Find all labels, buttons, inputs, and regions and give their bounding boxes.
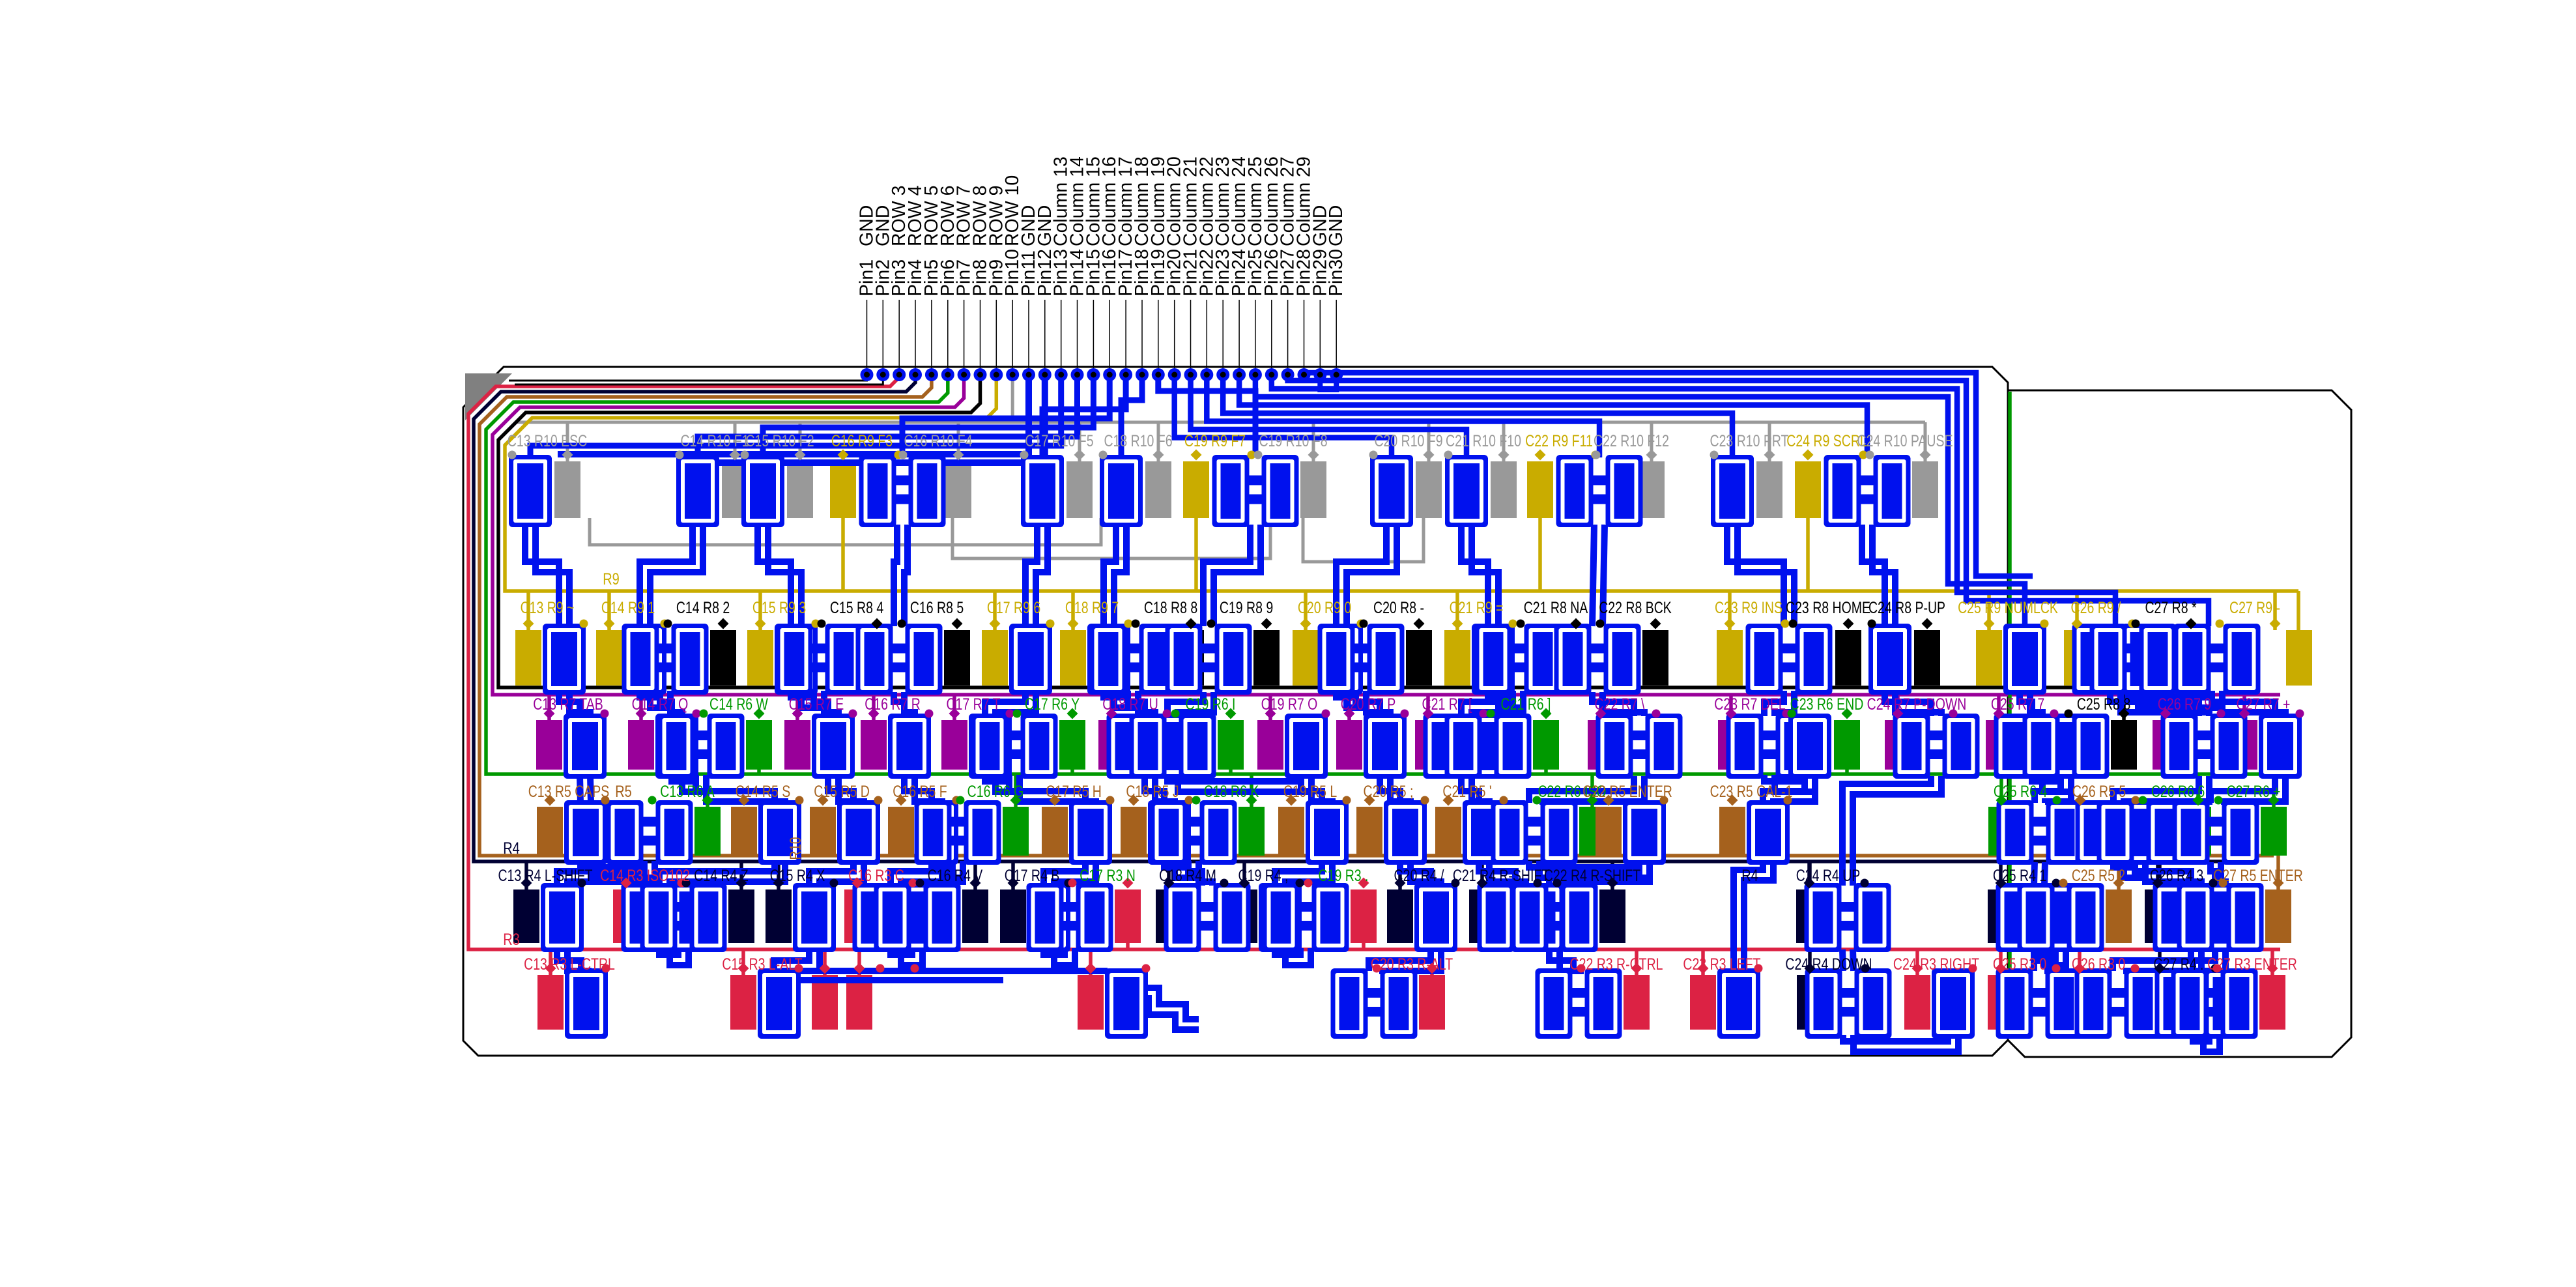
svg-text:C18 R8 8: C18 R8 8	[1144, 599, 1197, 617]
svg-text:C22 R4 R-SHIFT: C22 R4 R-SHIFT	[1544, 867, 1641, 885]
svg-text:C17 R9 6: C17 R9 6	[987, 599, 1040, 617]
svg-text:C25 R4 1: C25 R4 1	[1993, 867, 2046, 885]
svg-text:GND: GND	[1326, 205, 1347, 246]
svg-text:C23 R7 DEL: C23 R7 DEL	[1714, 695, 1785, 714]
svg-text:C22 R3 R-CTRL: C22 R3 R-CTRL	[1570, 955, 1663, 974]
svg-text:C19 R6 I: C19 R6 I	[1186, 695, 1236, 714]
svg-text:C15 R5 D: C15 R5 D	[814, 783, 870, 801]
svg-text:C19 R7 O: C19 R7 O	[1261, 695, 1318, 714]
svg-text:C16 R8 5: C16 R8 5	[910, 599, 964, 617]
svg-text:C14 R8 2: C14 R8 2	[676, 599, 730, 617]
svg-text:C19 R9 F7: C19 R9 F7	[1184, 432, 1246, 450]
svg-text:C17 R4 B: C17 R4 B	[1005, 867, 1060, 885]
svg-text:C15 R7 E: C15 R7 E	[789, 695, 844, 714]
svg-text:C26 R3 0: C26 R3 0	[2072, 955, 2125, 974]
svg-text:C19 R5 L: C19 R5 L	[1283, 783, 1337, 801]
svg-text:C24 R8 P-UP: C24 R8 P-UP	[1868, 599, 1945, 617]
svg-text:C24 R4 DOWN: C24 R4 DOWN	[1785, 955, 1872, 974]
svg-text:C19 R10 F8: C19 R10 F8	[1259, 432, 1327, 450]
svg-text:C22 R5 ENTER: C22 R5 ENTER	[1582, 783, 1672, 801]
svg-text:C27 R9 -: C27 R9 -	[2229, 599, 2280, 617]
svg-text:C15 R9 3: C15 R9 3	[752, 599, 806, 617]
svg-text:C23 R10 PRT: C23 R10 PRT	[1710, 432, 1789, 450]
svg-text:C22 R9 F11: C22 R9 F11	[1525, 432, 1593, 450]
svg-text:C18 R10 F6: C18 R10 F6	[1104, 432, 1172, 450]
svg-text:C27 R7 +: C27 R7 +	[2237, 695, 2291, 714]
svg-text:C14 R7 Q: C14 R7 Q	[632, 695, 689, 714]
svg-text:C13 R6 A: C13 R6 A	[660, 783, 714, 801]
svg-text:C22 R10 F12: C22 R10 F12	[1594, 432, 1669, 450]
svg-text:C20 R3 R-ALT: C20 R3 R-ALT	[1371, 955, 1453, 974]
svg-text:C13 R4 L-SHIFT: C13 R4 L-SHIFT	[498, 867, 592, 885]
svg-text:C20 R4 /: C20 R4 /	[1394, 867, 1445, 885]
svg-text:C23 R3 LEFT: C23 R3 LEFT	[1683, 955, 1760, 974]
svg-text:C16 R9 F3: C16 R9 F3	[831, 432, 893, 450]
svg-text:C15 R4 X: C15 R4 X	[770, 867, 825, 885]
svg-text:C19 R3 .: C19 R3 .	[1319, 867, 1369, 885]
svg-text:C20 R7 P: C20 R7 P	[1341, 695, 1396, 714]
svg-text:C26 R6 6: C26 R6 6	[2151, 783, 2205, 801]
svg-text:C22 R8 BCK: C22 R8 BCK	[1599, 599, 1672, 617]
svg-text:C20 R10 F9: C20 R10 F9	[1374, 432, 1442, 450]
svg-text:C14 R5 S: C14 R5 S	[736, 783, 791, 801]
svg-text:C13 R9 ~: C13 R9 ~	[521, 599, 575, 617]
svg-text:C22 R7 \: C22 R7 \	[1595, 695, 1646, 714]
svg-text:C21 R6 ]: C21 R6 ]	[1501, 695, 1551, 714]
svg-text:C18 R4 M: C18 R4 M	[1159, 867, 1216, 885]
svg-text:R10: R10	[786, 837, 805, 860]
svg-text:C13 R5 CAPS: C13 R5 CAPS	[528, 783, 610, 801]
svg-text:C14 R10 F1: C14 R10 F1	[680, 432, 749, 450]
svg-text:C17 R10 F5: C17 R10 F5	[1025, 432, 1093, 450]
svg-text:C14 R3 ISO102: C14 R3 ISO102	[600, 867, 690, 885]
svg-text:C26 R7 9: C26 R7 9	[2158, 695, 2211, 714]
svg-text:C13 R7 TAB: C13 R7 TAB	[533, 695, 603, 714]
svg-text:C26 R9 /: C26 R9 /	[2071, 599, 2122, 617]
svg-text:C17 R6 Y: C17 R6 Y	[1025, 695, 1080, 714]
svg-text:C15 R10 F2: C15 R10 F2	[745, 432, 814, 450]
svg-text:C25 R9 NUMLCK: C25 R9 NUMLCK	[1958, 599, 2058, 617]
svg-text:C25 R8 8: C25 R8 8	[2077, 695, 2130, 714]
svg-text:C13 R3 L-CTRL: C13 R3 L-CTRL	[524, 955, 615, 974]
svg-text:C13 R10 ESC: C13 R10 ESC	[508, 432, 587, 450]
svg-text:C17 R7 T: C17 R7 T	[946, 695, 1000, 714]
svg-text:C21 R9 =: C21 R9 =	[1450, 599, 1504, 617]
svg-text:C16 R5 F: C16 R5 F	[893, 783, 947, 801]
svg-text:C24 R10 PAUSE: C24 R10 PAUSE	[1857, 432, 1953, 450]
svg-text:C21 R10 F10: C21 R10 F10	[1446, 432, 1521, 450]
svg-text:C14 R9 1: C14 R9 1	[601, 599, 655, 617]
svg-text:C24 R7 P-DOWN: C24 R7 P-DOWN	[1867, 695, 1967, 714]
svg-text:C23 R8 HOME: C23 R8 HOME	[1786, 599, 1870, 617]
svg-text:C15 R8 4: C15 R8 4	[830, 599, 883, 617]
svg-text:C18 R9 7: C18 R9 7	[1065, 599, 1119, 617]
svg-text:C23 R5 CAL-1: C23 R5 CAL-1	[1710, 783, 1793, 801]
svg-text:Pin30: Pin30	[1326, 249, 1347, 296]
svg-text:C24 R3 RIGHT: C24 R3 RIGHT	[1893, 955, 1979, 974]
svg-text:C25 R6 4: C25 R6 4	[1994, 783, 2047, 801]
svg-text:C20 R9 0: C20 R9 0	[1298, 599, 1351, 617]
svg-text:R4: R4	[1741, 867, 1758, 885]
svg-text:C18 R5 J: C18 R5 J	[1126, 783, 1179, 801]
svg-text:C27 R6 +: C27 R6 +	[2227, 783, 2281, 801]
svg-text:R9: R9	[603, 570, 620, 588]
svg-text:R5: R5	[615, 783, 632, 801]
svg-text:C17 R3 N: C17 R3 N	[1080, 867, 1136, 885]
svg-text:C21 R8 NA: C21 R8 NA	[1524, 599, 1588, 617]
svg-text:C21 R7 [: C21 R7 [	[1422, 695, 1473, 714]
svg-text:R4: R4	[503, 839, 520, 858]
svg-text:C16 R3 C: C16 R3 C	[848, 867, 904, 885]
svg-text:C16 R7 R: C16 R7 R	[865, 695, 921, 714]
svg-text:C27 R3 ENTER: C27 R3 ENTER	[2207, 955, 2297, 974]
svg-text:C27 R8 *: C27 R8 *	[2145, 599, 2196, 617]
svg-text:C23 R9 INS: C23 R9 INS	[1715, 599, 1782, 617]
svg-text:R3: R3	[503, 931, 520, 949]
svg-text:C16 R6 G: C16 R6 G	[967, 783, 1024, 801]
svg-text:C17 R5 H: C17 R5 H	[1046, 783, 1102, 801]
svg-text:C18 R7 U: C18 R7 U	[1102, 695, 1158, 714]
svg-text:C19 R4 ,: C19 R4 ,	[1238, 867, 1289, 885]
svg-text:C25 R5 2: C25 R5 2	[2072, 867, 2125, 885]
svg-text:C26 R5 5: C26 R5 5	[2072, 783, 2126, 801]
svg-text:C21 R4 R-SHIFT: C21 R4 R-SHIFT	[1453, 867, 1550, 885]
svg-text:C16 R10 F4: C16 R10 F4	[904, 432, 972, 450]
svg-text:C19 R8 9: C19 R8 9	[1220, 599, 1273, 617]
svg-text:C21 R5 ': C21 R5 '	[1442, 783, 1491, 801]
svg-text:C18 R6 K: C18 R6 K	[1204, 783, 1259, 801]
svg-text:C23 R6 END: C23 R6 END	[1790, 695, 1864, 714]
svg-text:C14 R6 W: C14 R6 W	[709, 695, 769, 714]
svg-text:C20 R8 -: C20 R8 -	[1373, 599, 1424, 617]
svg-text:C27 R5 ENTER: C27 R5 ENTER	[2213, 867, 2303, 885]
svg-text:C16 R4 V: C16 R4 V	[928, 867, 983, 885]
svg-text:C25 R3 0: C25 R3 0	[1993, 955, 2046, 974]
svg-text:C15 R3 L-ALT: C15 R3 L-ALT	[722, 955, 802, 974]
svg-text:C14 R4 Z: C14 R4 Z	[694, 867, 748, 885]
svg-text:C26 R4 3: C26 R4 3	[2150, 867, 2203, 885]
svg-text:C25 R7 7: C25 R7 7	[1991, 695, 2044, 714]
svg-text:C27 R4 .: C27 R4 .	[2154, 955, 2204, 974]
svg-text:C20 R5 ;: C20 R5 ;	[1364, 783, 1414, 801]
svg-text:C24 R4 UP: C24 R4 UP	[1796, 867, 1861, 885]
svg-text:C24 R9 SCRL: C24 R9 SCRL	[1786, 432, 1867, 450]
